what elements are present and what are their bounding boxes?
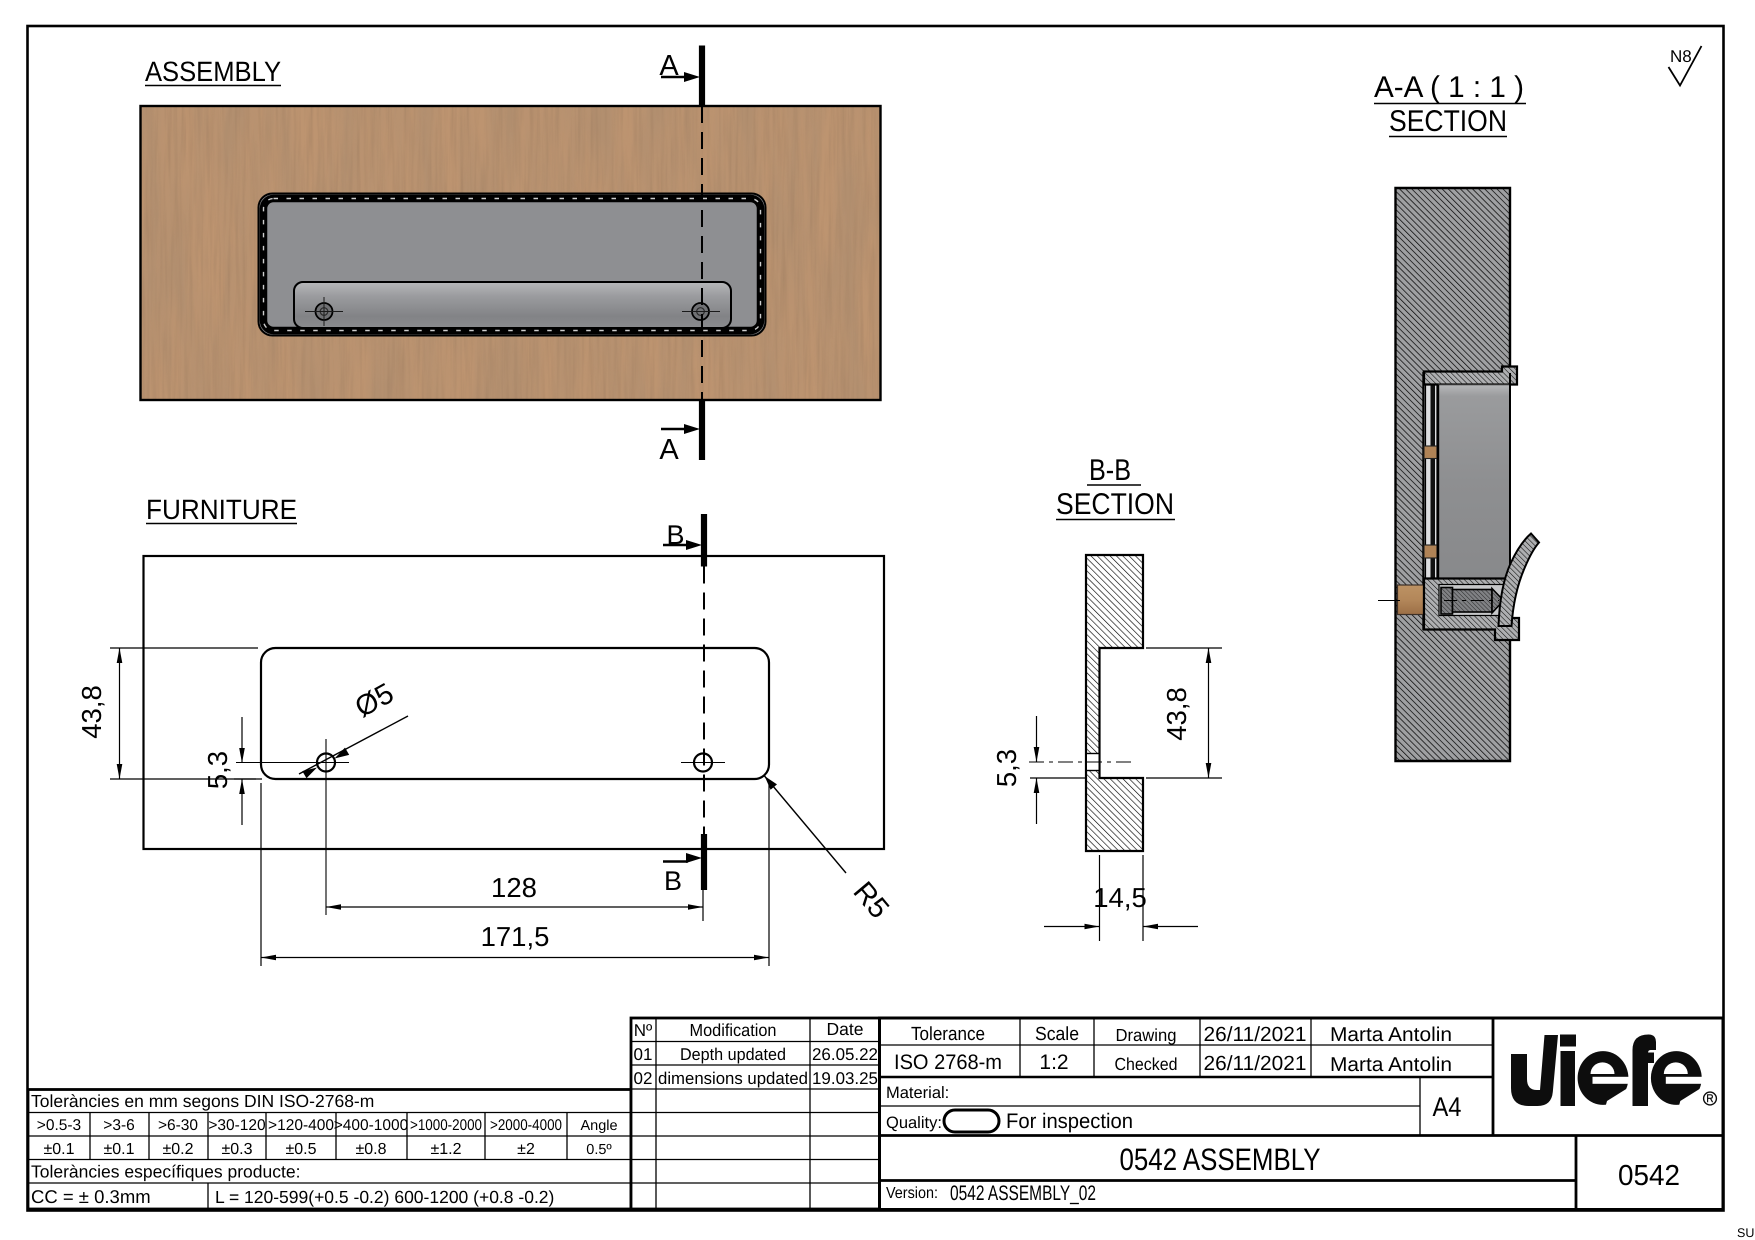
svg-text:0.5º: 0.5º (586, 1142, 612, 1158)
svg-text:A: A (659, 50, 679, 82)
svg-text:Depth updated: Depth updated (680, 1045, 786, 1064)
svg-text:Drawing: Drawing (1116, 1025, 1177, 1045)
svg-text:dimensions updated: dimensions updated (658, 1069, 808, 1088)
svg-text:Marta Antolin: Marta Antolin (1330, 1054, 1452, 1076)
svg-text:Material:: Material: (886, 1084, 949, 1102)
svg-text:Checked: Checked (1115, 1054, 1178, 1074)
svg-text:B: B (666, 520, 684, 550)
svg-text:>120-400: >120-400 (268, 1117, 334, 1134)
svg-text:>6-30: >6-30 (158, 1117, 198, 1134)
svg-text:5,3: 5,3 (991, 749, 1022, 787)
svg-text:±0.3: ±0.3 (221, 1141, 252, 1158)
svg-text:ISO 2768-m: ISO 2768-m (894, 1051, 1002, 1074)
svg-text:Nº: Nº (634, 1021, 653, 1040)
svg-text:L = 120-599(+0.5 -0.2) 600-120: L = 120-599(+0.5 -0.2) 600-1200 (+0.8 -0… (215, 1187, 554, 1207)
svg-text:Modification: Modification (690, 1020, 777, 1040)
svg-text:Scale: Scale (1035, 1024, 1079, 1045)
svg-text:0542: 0542 (1618, 1160, 1680, 1192)
svg-text:Version:: Version: (886, 1185, 938, 1202)
svg-text:CC = ± 0.3mm: CC = ± 0.3mm (31, 1186, 151, 1207)
svg-text:ASSEMBLY: ASSEMBLY (145, 56, 281, 87)
svg-text:1:2: 1:2 (1039, 1051, 1068, 1074)
svg-text:±2: ±2 (517, 1141, 535, 1158)
svg-text:A4: A4 (1433, 1092, 1462, 1122)
svg-text:±1.2: ±1.2 (430, 1141, 461, 1158)
svg-text:R5: R5 (847, 876, 895, 925)
svg-text:19.03.25: 19.03.25 (812, 1069, 878, 1088)
svg-text:0542 ASSEMBLY: 0542 ASSEMBLY (1120, 1142, 1321, 1177)
svg-text:±0.2: ±0.2 (162, 1141, 193, 1158)
svg-text:N8: N8 (1670, 47, 1692, 66)
svg-text:>30-120: >30-120 (208, 1117, 266, 1134)
svg-text:Marta Antolin: Marta Antolin (1330, 1024, 1452, 1046)
svg-text:Tolerance: Tolerance (911, 1024, 985, 1045)
svg-text:Toleràncies específiques produ: Toleràncies específiques producte: (31, 1162, 300, 1182)
svg-text:>0.5-3: >0.5-3 (37, 1117, 81, 1134)
svg-text:FURNITURE: FURNITURE (146, 494, 297, 525)
svg-text:±0.5: ±0.5 (285, 1141, 316, 1158)
svg-text:01: 01 (634, 1045, 653, 1064)
svg-text:B-B: B-B (1089, 454, 1131, 487)
svg-text:02: 02 (634, 1069, 653, 1088)
svg-text:5,3: 5,3 (202, 751, 233, 789)
svg-text:SECTION: SECTION (1056, 488, 1174, 521)
svg-text:14,5: 14,5 (1093, 882, 1147, 913)
svg-text:26/11/2021: 26/11/2021 (1204, 1023, 1307, 1046)
svg-text:26.05.22: 26.05.22 (812, 1045, 878, 1064)
svg-text:±0.1: ±0.1 (43, 1141, 74, 1158)
svg-text:>2000-4000: >2000-4000 (490, 1117, 562, 1134)
svg-text:Date: Date (827, 1019, 864, 1039)
svg-text:SU: SU (1737, 1226, 1754, 1240)
svg-text:A-A ( 1 : 1 ): A-A ( 1 : 1 ) (1374, 71, 1524, 104)
svg-text:SECTION: SECTION (1389, 105, 1507, 138)
svg-text:>1000-2000: >1000-2000 (410, 1117, 482, 1134)
svg-text:B: B (664, 866, 682, 896)
svg-text:For inspection: For inspection (1006, 1110, 1133, 1133)
svg-text:171,5: 171,5 (481, 921, 550, 952)
svg-text:±0.1: ±0.1 (103, 1141, 134, 1158)
svg-text:Quality:: Quality: (886, 1114, 942, 1132)
svg-text:0542 ASSEMBLY_02: 0542 ASSEMBLY_02 (950, 1182, 1096, 1205)
svg-text:A: A (659, 434, 679, 466)
svg-text:43,8: 43,8 (1161, 687, 1192, 741)
svg-text:>400-1000: >400-1000 (334, 1117, 409, 1134)
svg-text:128: 128 (491, 872, 537, 903)
svg-text:Toleràncies en mm segons DIN I: Toleràncies en mm segons DIN ISO-2768-m (31, 1091, 374, 1111)
svg-text:43,8: 43,8 (76, 685, 107, 739)
svg-text:Angle: Angle (580, 1118, 617, 1134)
svg-text:±0.8: ±0.8 (355, 1141, 386, 1158)
svg-text:>3-6: >3-6 (103, 1117, 134, 1134)
svg-text:26/11/2021: 26/11/2021 (1204, 1052, 1307, 1075)
